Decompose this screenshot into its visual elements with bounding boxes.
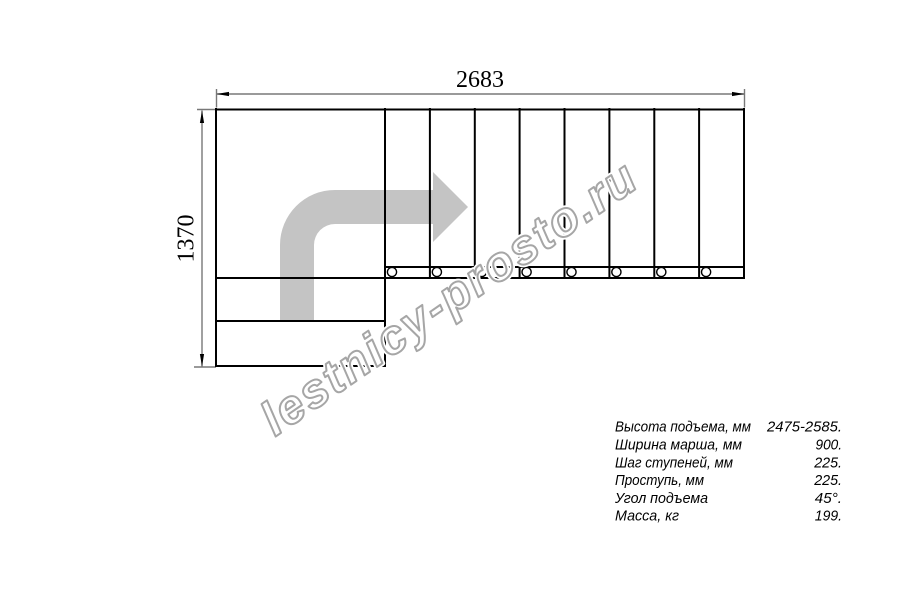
svg-text:Ширина марша, мм: Ширина марша, мм	[615, 437, 742, 454]
svg-text:900.: 900.	[816, 437, 843, 454]
svg-text:Угол подъема: Угол подъема	[614, 490, 708, 507]
svg-text:Масса, кг: Масса, кг	[615, 508, 680, 525]
svg-text:Высота подъема, мм: Высота подъема, мм	[615, 419, 751, 436]
svg-text:2475-2585.: 2475-2585.	[766, 419, 842, 436]
svg-text:225.: 225.	[813, 472, 842, 489]
svg-text:45°.: 45°.	[815, 490, 842, 507]
svg-text:2683: 2683	[456, 67, 504, 93]
svg-text:199.: 199.	[815, 508, 842, 525]
svg-text:225.: 225.	[813, 454, 842, 471]
svg-text:1370: 1370	[174, 215, 200, 263]
svg-text:Шаг ступеней, мм: Шаг ступеней, мм	[615, 454, 733, 471]
svg-text:Проступь, мм: Проступь, мм	[615, 472, 704, 489]
